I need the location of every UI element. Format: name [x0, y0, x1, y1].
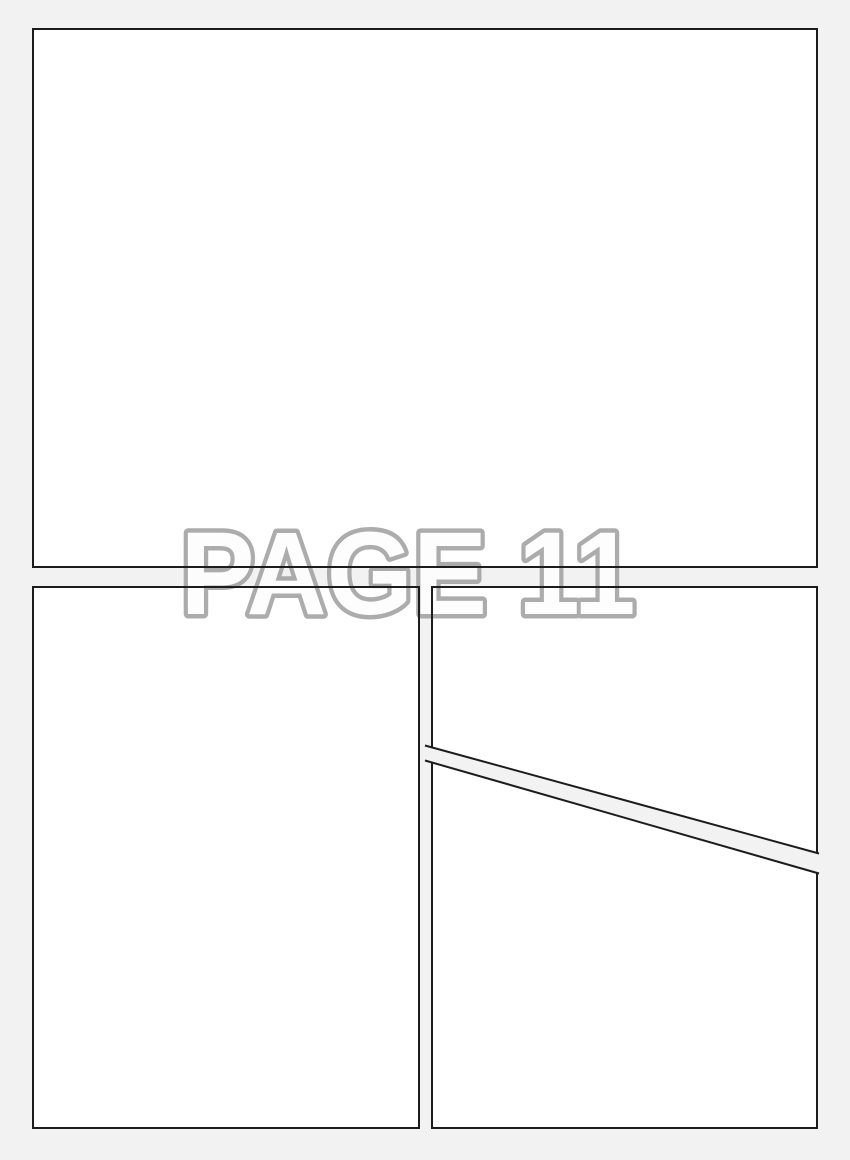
panel-1[interactable] — [32, 28, 818, 568]
panel-2[interactable] — [32, 586, 420, 1129]
comic-page-canvas: PAGE 11 — [0, 0, 850, 1160]
